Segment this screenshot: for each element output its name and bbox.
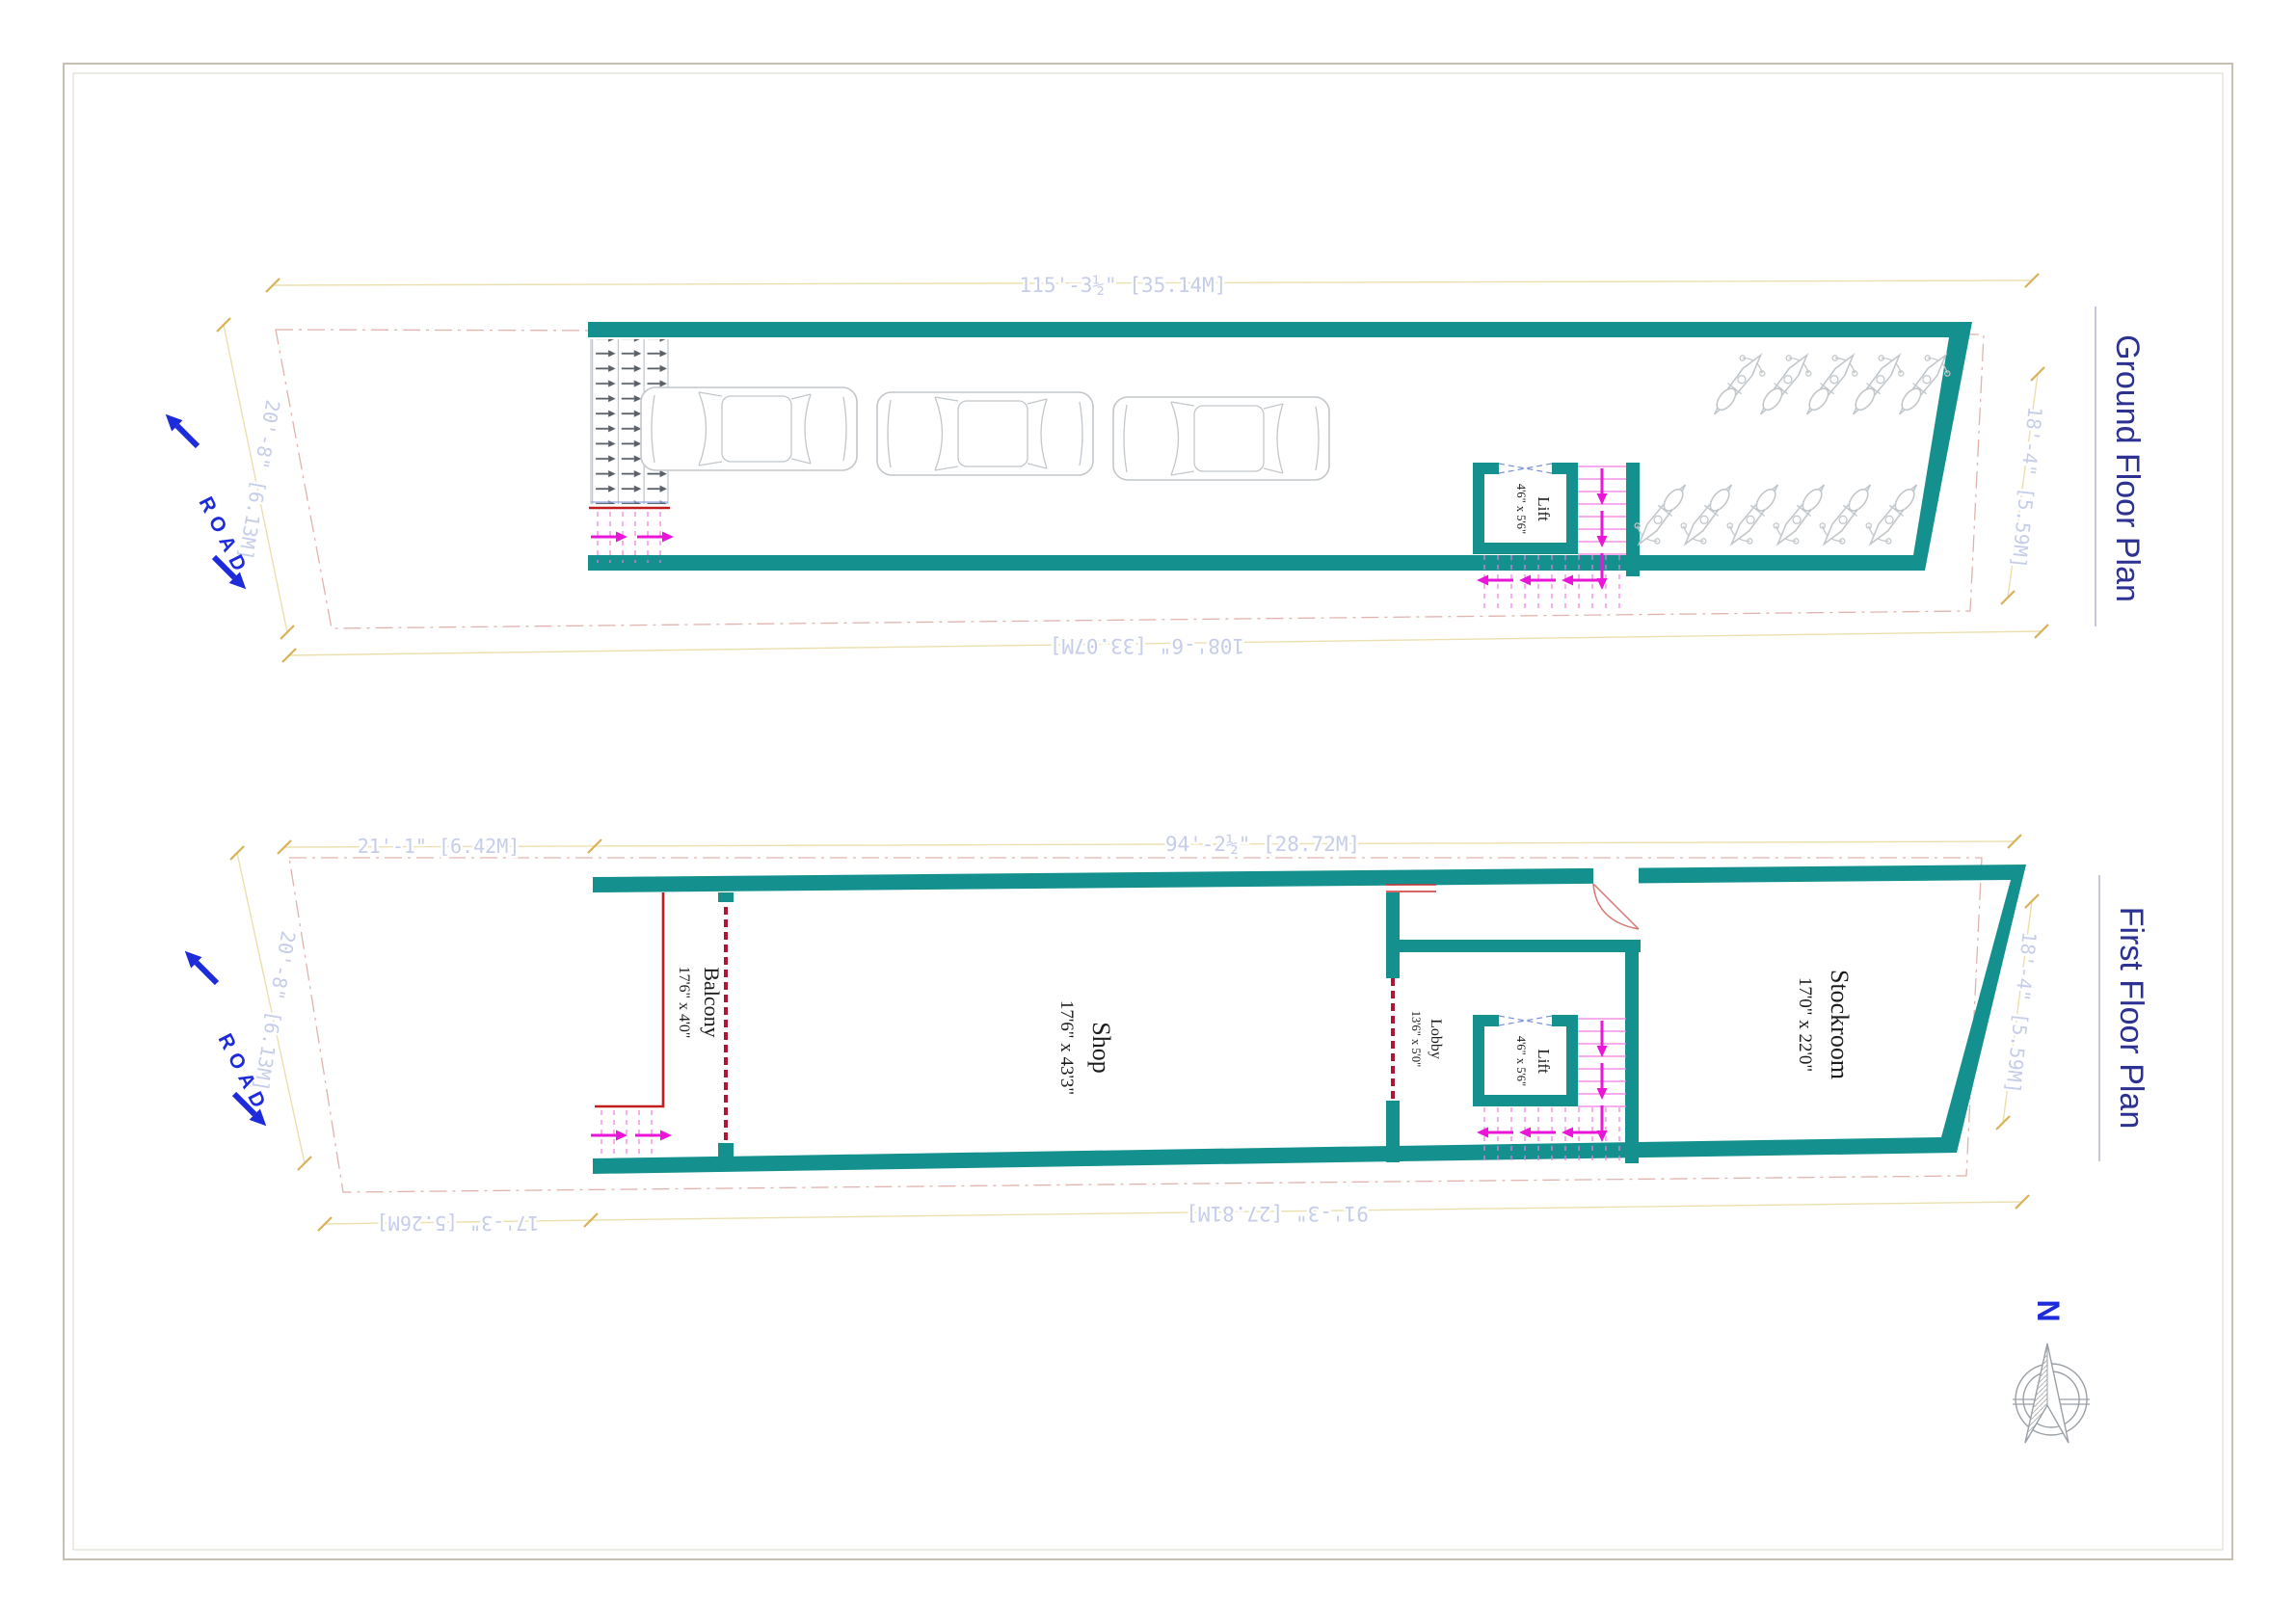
dim-bottom-right: 91'-3" [27.81M] — [1186, 1202, 1369, 1225]
entrance-door — [1593, 884, 1639, 929]
lobby-label: Lobby — [1428, 1019, 1444, 1059]
lift-label: Lift — [1535, 496, 1553, 521]
dim-left: 20'-8" [6.13M] — [233, 398, 284, 562]
dim-bottom-left: 17'-3" [5.26M] — [377, 1211, 540, 1235]
north-compass: N — [2013, 1299, 2090, 1443]
dim-right: 18'-4" [5.59M] — [2001, 931, 2041, 1095]
ground-floor-title: Ground Floor Plan — [2109, 334, 2146, 602]
compass-needle-shade — [2025, 1344, 2047, 1443]
stockroom-label: Stockroom — [1826, 970, 1854, 1079]
shop-label: Shop — [1087, 1022, 1115, 1073]
dim-bottom: 108'-6" [33.07M] — [1050, 634, 1244, 657]
lift-stairs-unit — [1473, 463, 1626, 611]
road-arrow-icon — [160, 409, 203, 452]
lift-stairs-unit — [1473, 1015, 1626, 1163]
north-label: N — [2031, 1299, 2066, 1321]
lift-size: 4'6" x 5'6" — [1514, 1036, 1528, 1086]
lift-size: 4'6" x 5'6" — [1514, 484, 1528, 534]
window-symbol — [1386, 885, 1436, 891]
balcony: Balcony 17'6" x 4'0" — [591, 892, 734, 1158]
car-icon — [641, 387, 857, 470]
ground-floor-plan: 115'-3½" [35.14M] 20'-8" [6.13M] 18'-4" … — [160, 274, 2146, 662]
road-label-ground: ROAD — [160, 409, 254, 595]
stair-side-wall — [1626, 463, 1640, 576]
dim-left: 20'-8" [6.13M] — [249, 929, 300, 1093]
car-icon — [877, 392, 1093, 475]
dim-top-left: 21'-1" [6.42M] — [358, 835, 521, 858]
dim-right: 18'-4" [5.59M] — [2007, 406, 2046, 570]
floor-plan-svg: 115'-3½" [35.14M] 20'-8" [6.13M] 18'-4" … — [0, 0, 2296, 1623]
dim-line-top — [284, 841, 2015, 847]
lobby-size: 13'6" x 5'0" — [1409, 1011, 1423, 1067]
dim-top: 115'-3½" [35.14M] — [1020, 274, 1227, 297]
lift-label: Lift — [1535, 1049, 1553, 1074]
first-floor-title: First Floor Plan — [2113, 907, 2149, 1130]
door-opening — [1593, 865, 1639, 885]
balcony-label: Balcony — [700, 967, 724, 1037]
bike-parking — [1627, 346, 1958, 553]
drawing-sheet: 115'-3½" [35.14M] 20'-8" [6.13M] 18'-4" … — [0, 0, 2296, 1623]
shop-size: 17'6" x 43'3" — [1056, 1000, 1077, 1095]
balcony-size: 17'6" x 4'0" — [676, 967, 692, 1039]
first-floor-plan: 21'-1" [6.42M] 94'-2½" [28.72M] 20'-8" [… — [179, 833, 2149, 1235]
stockroom-size: 17'0" x 22'0" — [1795, 977, 1815, 1072]
dim-top-right: 94'-2½" [28.72M] — [1165, 833, 1360, 856]
road-arrow-icon — [179, 945, 223, 989]
car-icon — [1113, 397, 1329, 480]
